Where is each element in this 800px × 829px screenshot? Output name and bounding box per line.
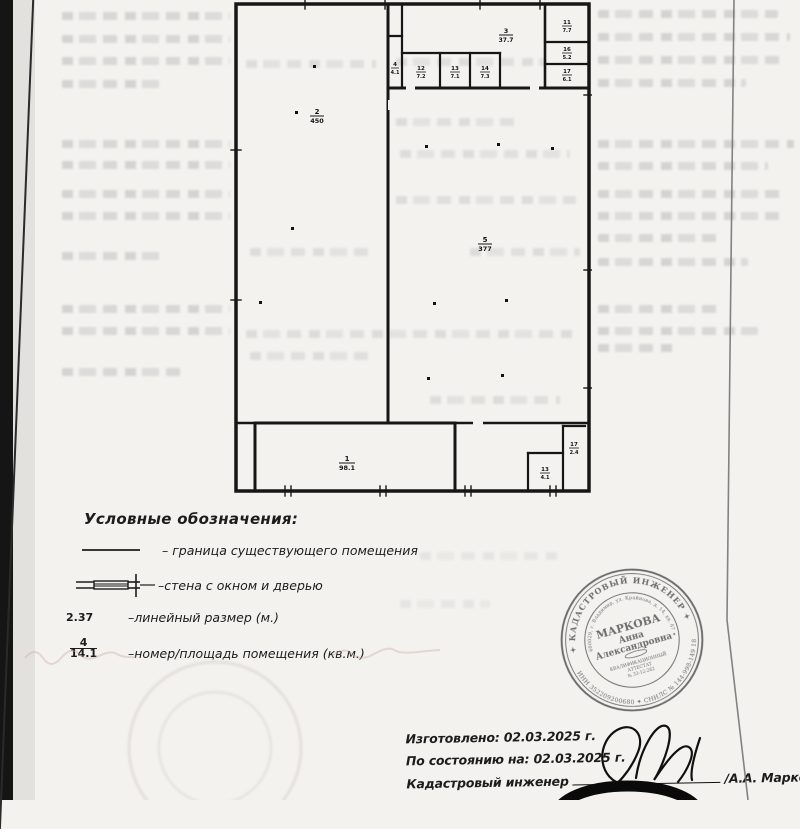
- legend-boundary-symbol: [82, 546, 142, 554]
- room-label-row-1: 12 7.2: [416, 66, 426, 80]
- bleedthrough-line: [598, 327, 758, 335]
- bleedthrough-line: [598, 305, 718, 313]
- svg-text:7.1: 7.1: [451, 74, 460, 80]
- svg-text:1: 1: [345, 455, 350, 463]
- engineer-name: /А.А. Маркова: [724, 769, 800, 786]
- legend-wall-window-door-symbol: [76, 574, 156, 598]
- room-label-row-3: 14 7.3: [480, 66, 490, 80]
- bleedthrough-line: [62, 57, 230, 65]
- room-label-main: 5 377: [478, 236, 492, 253]
- svg-text:2: 2: [315, 108, 320, 116]
- legend-linear-label: –линейный размер (м.): [128, 610, 279, 625]
- room-label-bottom-narrow: 17 2.4: [569, 442, 579, 456]
- svg-text:14: 14: [481, 66, 489, 72]
- svg-text:5: 5: [483, 236, 488, 244]
- engineer-signature-line: Кадастровый инженер/А.А. Маркова: [406, 769, 798, 792]
- svg-text:13: 13: [541, 467, 549, 473]
- room-label-bottom-square: 13 4.1: [540, 467, 550, 481]
- page-fold-line: [727, 0, 748, 800]
- svg-text:3: 3: [504, 27, 509, 35]
- svg-text:4.1: 4.1: [541, 475, 550, 481]
- room-label-col-3: 17 6.1: [562, 69, 572, 83]
- room-label-row-2: 13 7.1: [450, 66, 460, 80]
- legend-room-symbol: 4 14.1: [70, 638, 97, 659]
- bleedthrough-line: [598, 56, 784, 64]
- bleedthrough-line: [62, 252, 162, 260]
- room-label-col-2: 16 5.2: [562, 47, 572, 61]
- bleedthrough-line: [62, 80, 162, 88]
- svg-text:7.7: 7.7: [563, 28, 572, 34]
- svg-text:17: 17: [563, 69, 571, 75]
- room-label-top-wide: 3 37.7: [499, 27, 514, 44]
- as-of-date-line: По состоянию на: 02.03.2025 г.: [406, 747, 798, 769]
- legend-room-symbol-area: 14.1: [70, 649, 97, 659]
- room-label-col-1: 11 7.7: [562, 20, 572, 34]
- bleedthrough-line: [598, 162, 768, 170]
- bleedthrough-line: [62, 35, 230, 43]
- room-label-narrow: 4 4.1: [391, 62, 400, 76]
- svg-text:7.2: 7.2: [417, 74, 426, 80]
- svg-text:17: 17: [570, 442, 578, 448]
- signature-underline: [572, 770, 720, 786]
- svg-text:98.1: 98.1: [339, 464, 356, 472]
- svg-text:377: 377: [478, 245, 492, 253]
- svg-text:4: 4: [393, 62, 397, 68]
- bleedthrough-line: [598, 344, 678, 352]
- column-dots: [259, 65, 554, 380]
- door-openings: [388, 85, 539, 426]
- legend-title: Условные обозначения:: [84, 510, 298, 528]
- bleedthrough-line: [598, 140, 794, 148]
- svg-text:11: 11: [563, 20, 571, 26]
- cadastral-engineer-round-stamp: ✦ КАДАСТРОВЫЙ ИНЖЕНЕР ✦ ИНН 352209200680…: [538, 546, 726, 734]
- svg-text:5.2: 5.2: [563, 55, 572, 61]
- svg-text:16: 16: [563, 47, 571, 53]
- svg-text:6.1: 6.1: [563, 77, 572, 83]
- bleedthrough-line: [598, 10, 778, 18]
- bleedthrough-line: [62, 12, 230, 20]
- scanned-cadastral-document-page: { "legend": { "title": "Условные обознач…: [0, 0, 800, 800]
- svg-text:7.3: 7.3: [481, 74, 490, 80]
- legend-boundary-label: – граница существующего помещения: [162, 543, 418, 558]
- bleedthrough-line: [62, 140, 230, 148]
- bleedthrough-line: [598, 234, 718, 242]
- plan-outer-wall: [236, 4, 589, 491]
- bleedthrough-line: [62, 212, 230, 220]
- svg-text:13: 13: [451, 66, 459, 72]
- svg-text:12: 12: [417, 66, 425, 72]
- legend-wall-label: –стена с окном и дверью: [158, 578, 323, 593]
- bleedthrough-line: [62, 368, 182, 376]
- svg-text:450: 450: [310, 117, 324, 125]
- bleedthrough-line: [420, 552, 560, 560]
- room-label-left-big: 2 450: [310, 108, 324, 125]
- svg-text:2.4: 2.4: [570, 450, 579, 456]
- bleedthrough-line: [62, 190, 230, 198]
- bleedthrough-line: [598, 33, 790, 41]
- svg-text:4.1: 4.1: [391, 70, 400, 76]
- footer-block: Изготовлено: 02.03.2025 г. По состоянию …: [405, 725, 798, 799]
- bleedthrough-line: [598, 190, 780, 198]
- floor-plan-drawing: 2 450 5 377 3 37.7 4 4.1 12 7.2 13 7.1: [230, 0, 592, 498]
- legend-room-label: –номер/площадь помещения (кв.м.): [128, 646, 365, 661]
- room-label-bottom-left: 1 98.1: [339, 455, 356, 472]
- bleedthrough-line: [598, 79, 746, 87]
- bleedthrough-line: [400, 600, 490, 608]
- svg-text:37.7: 37.7: [499, 37, 514, 44]
- faint-stamp-impression: [129, 662, 301, 800]
- bleedthrough-line: [598, 212, 784, 220]
- bleedthrough-line: [62, 161, 230, 169]
- engineer-label: Кадастровый инженер: [406, 774, 569, 792]
- legend-linear-symbol: 2.37: [66, 611, 93, 624]
- bleedthrough-line: [62, 327, 230, 335]
- made-date-line: Изготовлено: 02.03.2025 г.: [405, 725, 797, 747]
- bleedthrough-line: [598, 258, 748, 266]
- bleedthrough-line: [62, 305, 230, 313]
